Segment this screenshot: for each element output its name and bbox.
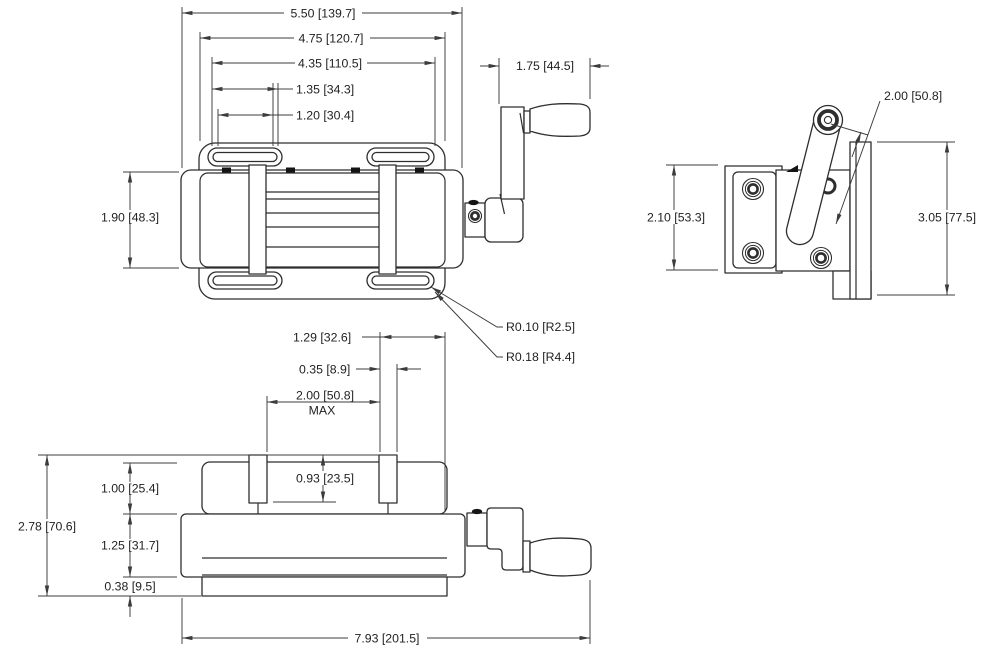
crank-hub	[485, 198, 523, 242]
dim-top-body-depth: 1.90 [48.3]	[101, 211, 159, 225]
set-screw-mark-front	[472, 509, 482, 514]
dim-front-base-height: 0.38 [9.5]	[104, 580, 155, 594]
vise-body-outline	[181, 170, 463, 268]
dim-top-slot-span: 4.35 [110.5]	[298, 57, 362, 71]
dim-side-overall-height: 3.05 [77.5]	[918, 211, 976, 225]
dim-front-body-height: 1.25 [31.7]	[101, 539, 159, 553]
top-view: 5.50 [139.7] 4.75 [120.7] 4.35 [110.5] 1…	[95, 6, 609, 364]
front-body	[181, 514, 465, 577]
slide-top-section	[202, 462, 447, 514]
dim-top-slot-length-outer: 1.35 [34.3]	[296, 83, 354, 97]
dim-front-jaw-thickness: 0.35 [8.9]	[299, 363, 350, 377]
movable-jaw-front	[379, 455, 397, 503]
crank-assembly-front	[467, 508, 591, 576]
dim-front-overall-length: 7.93 [201.5]	[355, 632, 420, 646]
crank-assembly-top	[465, 104, 590, 242]
slide-plate-edge	[850, 142, 871, 299]
dim-top-slot-length-inner: 1.20 [30.4]	[296, 109, 354, 123]
knob-neck	[524, 111, 530, 133]
fixed-jaw-plate-face	[733, 172, 776, 268]
dim-handle-offset: 1.75 [44.5]	[516, 59, 574, 73]
side-view: 2.10 [53.3] 3.05 [77.5] 2.00 [50.8]	[640, 89, 983, 299]
dim-front-overall-height: 2.78 [70.6]	[18, 520, 76, 534]
dim-top-plate-width: 4.75 [120.7]	[299, 32, 364, 46]
knob-neck-front	[523, 541, 530, 572]
dim-front-top-height: 1.00 [25.4]	[101, 482, 159, 496]
dim-top-overall-width: 5.50 [139.7]	[291, 7, 356, 21]
movable-jaw-bar	[379, 165, 396, 274]
dim-jaw-height: 0.93 [23.5]	[296, 472, 354, 486]
front-base-flange	[202, 577, 447, 596]
vise-technical-drawing: 5.50 [139.7] 4.75 [120.7] 4.35 [110.5] 1…	[0, 0, 1000, 653]
front-view: 1.29 [32.6] 0.35 [8.9] 2.00 [50.8] MAX 0…	[12, 331, 591, 646]
dim-crank-length: 2.00 [50.8]	[884, 89, 942, 103]
crank-hub-front	[487, 508, 523, 570]
dim-slot-radius-inner: R0.10 [R2.5]	[506, 320, 575, 334]
dim-jaw-opening: 2.00 [50.8]	[296, 389, 354, 403]
crank-arm-top	[501, 107, 524, 199]
dim-slot-radius-outer: R0.18 [R4.4]	[506, 350, 575, 364]
vise-technical-drawing-page: 5.50 [139.7] 4.75 [120.7] 4.35 [110.5] 1…	[0, 0, 1000, 653]
dim-front-end-offset: 1.29 [32.6]	[293, 331, 351, 345]
screw-collar-front	[467, 513, 487, 546]
crank-knob-top	[530, 104, 590, 137]
dim-side-plate-height: 2.10 [53.3]	[647, 211, 705, 225]
crank-knob-front	[530, 538, 591, 576]
fixed-jaw-front	[249, 455, 267, 503]
set-screw-mark	[468, 200, 478, 205]
dim-jaw-opening-suffix: MAX	[309, 404, 336, 418]
fixed-jaw-bar	[249, 165, 266, 274]
